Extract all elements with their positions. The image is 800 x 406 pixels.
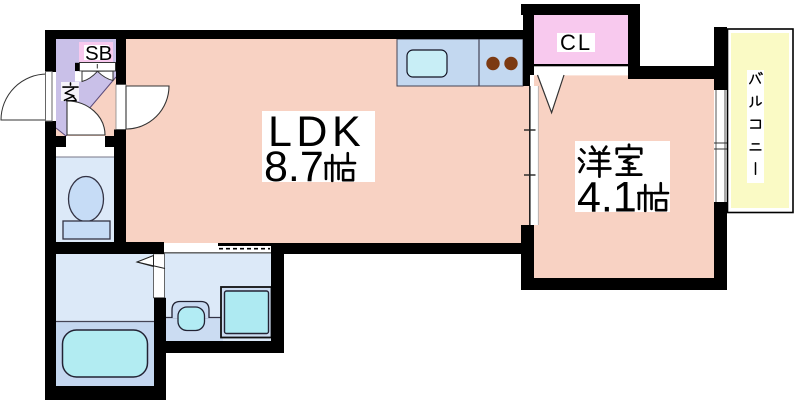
svg-text:SB: SB [85,42,112,65]
svg-text:8.7: 8.7 [264,143,324,191]
svg-text:4.1: 4.1 [577,174,637,222]
svg-text:CL: CL [560,30,592,55]
